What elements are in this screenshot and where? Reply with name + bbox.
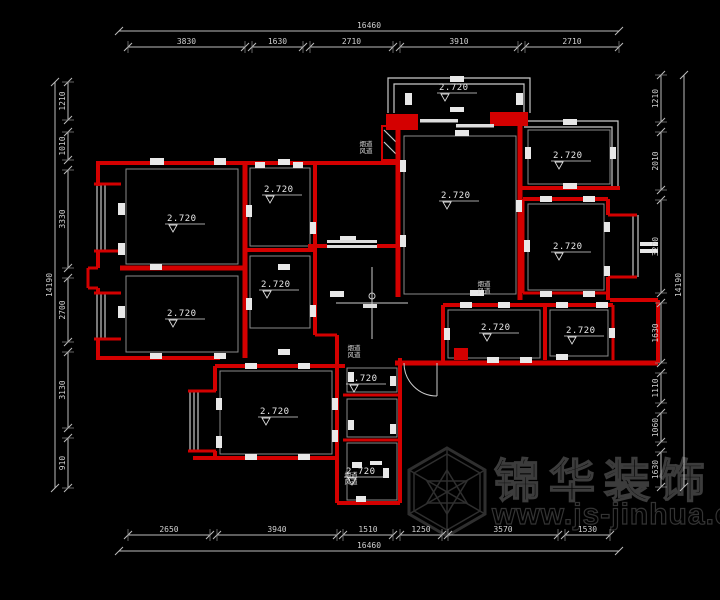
dim-label: 3940	[267, 525, 286, 534]
shaft-label-line2: 风道	[360, 146, 374, 155]
dim-label: 1210	[58, 91, 67, 110]
sliding-door-leaf	[327, 240, 377, 243]
room-inner-outlines	[126, 130, 610, 500]
shaft-label-line1: 烟道	[478, 279, 492, 288]
elevation-triangle-icon	[263, 291, 271, 298]
elevation-marker: 2.720	[165, 309, 205, 327]
elevation-value: 2.720	[553, 242, 583, 252]
elevation-value: 2.720	[553, 151, 583, 161]
dim-label: 910	[58, 456, 67, 471]
wall-stub	[490, 112, 528, 126]
shaft-label: 烟道风道	[348, 343, 362, 359]
dim-label: 1630	[651, 460, 660, 479]
shaft-label-line2: 风道	[478, 286, 492, 295]
dim-label: 3910	[449, 37, 468, 46]
dim-label: 2700	[58, 300, 67, 319]
elevation-triangle-icon	[555, 162, 563, 169]
elevation-marker: 2.720	[479, 323, 519, 341]
elevation-triangle-icon	[443, 202, 451, 209]
elevation-triangle-icon	[441, 94, 449, 101]
elevation-value: 2.720	[481, 323, 511, 333]
wall-fill-marks	[118, 76, 658, 502]
elevation-triangle-icon	[568, 337, 576, 344]
watermark: 锦华装饰 www.js-jinhua.com	[409, 448, 720, 536]
elevation-triangle-icon	[169, 225, 177, 232]
dim-label: 2710	[342, 37, 361, 46]
sliding-door-leaf	[456, 124, 494, 128]
shaft-label-line1: 烟道	[345, 470, 359, 479]
elevation-marker: 2.720	[165, 214, 205, 232]
elevation-value: 2.720	[566, 326, 596, 336]
watermark-url-text: www.js-jinhua.com	[491, 498, 720, 531]
dim-label-total: 14190	[674, 273, 683, 297]
dim-label: 2010	[651, 151, 660, 170]
dim-label-total: 16460	[357, 21, 381, 30]
elevation-marker: 2.720	[564, 326, 604, 344]
shaft-label: 烟道风道	[345, 470, 359, 486]
dim-label: 3330	[58, 209, 67, 228]
wall-stub	[386, 114, 418, 130]
elevation-marker: 2.720	[437, 83, 477, 101]
shaft-label-line1: 烟道	[360, 139, 374, 148]
dim-label: 1630	[651, 323, 660, 342]
watermark-cube-logo	[409, 448, 485, 536]
sliding-door-leaf	[420, 119, 458, 123]
shaft-label-line2: 风道	[348, 350, 362, 359]
elevation-triangle-icon	[555, 253, 563, 260]
elevation-value: 2.720	[167, 309, 197, 319]
dim-label: 1210	[651, 89, 660, 108]
elevation-value: 2.720	[439, 83, 469, 93]
elevation-value: 2.720	[348, 374, 378, 384]
elevation-marker: 2.720	[439, 191, 479, 209]
dim-label: 1510	[358, 525, 377, 534]
elevation-marker: 2.720	[262, 185, 302, 203]
dim-label: 3270	[651, 237, 660, 256]
shaft-label-line1: 烟道	[348, 343, 362, 352]
column-block	[454, 348, 468, 360]
dim-label: 3570	[493, 525, 512, 534]
entry-door-arc	[404, 363, 437, 396]
elevation-triangle-icon	[262, 418, 270, 425]
dim-label-total: 16460	[357, 541, 381, 550]
dim-label: 1250	[411, 525, 430, 534]
dim-label: 2710	[562, 37, 581, 46]
dim-label: 3830	[177, 37, 196, 46]
cad-floorplan-canvas: 锦华装饰 www.js-jinhua.com 16460383016302710…	[0, 0, 720, 600]
elevation-value: 2.720	[167, 214, 197, 224]
elevation-value: 2.720	[441, 191, 471, 201]
shaft-label: 烟道风道	[478, 279, 492, 295]
dim-label: 2650	[159, 525, 178, 534]
elevation-marker: 2.720	[259, 280, 299, 298]
dim-label: 1010	[58, 136, 67, 155]
elevation-value: 2.720	[260, 407, 290, 417]
elevation-marker: 2.720	[346, 374, 386, 392]
elevation-triangle-icon	[483, 334, 491, 341]
dim-label: 1060	[651, 418, 660, 437]
elevation-marker: 2.720	[551, 151, 591, 169]
sliding-door-leaf	[327, 245, 377, 248]
elevation-value: 2.720	[261, 280, 291, 290]
elevation-marker: 2.720	[551, 242, 591, 260]
elevation-value: 2.720	[264, 185, 294, 195]
shaft-label-line2: 风道	[345, 477, 359, 486]
elevation-triangle-icon	[266, 196, 274, 203]
dim-label-total: 14190	[45, 273, 54, 297]
floorplan-drawing: 锦华装饰 www.js-jinhua.com 16460383016302710…	[0, 0, 720, 600]
elevation-marker: 2.720	[258, 407, 298, 425]
dim-label: 1630	[268, 37, 287, 46]
dim-label: 3130	[58, 380, 67, 399]
elevation-triangle-icon	[350, 385, 358, 392]
dim-label: 1530	[578, 525, 597, 534]
elevation-triangle-icon	[169, 320, 177, 327]
dim-label: 1110	[651, 378, 660, 397]
shaft-label: 烟道风道	[360, 139, 374, 155]
